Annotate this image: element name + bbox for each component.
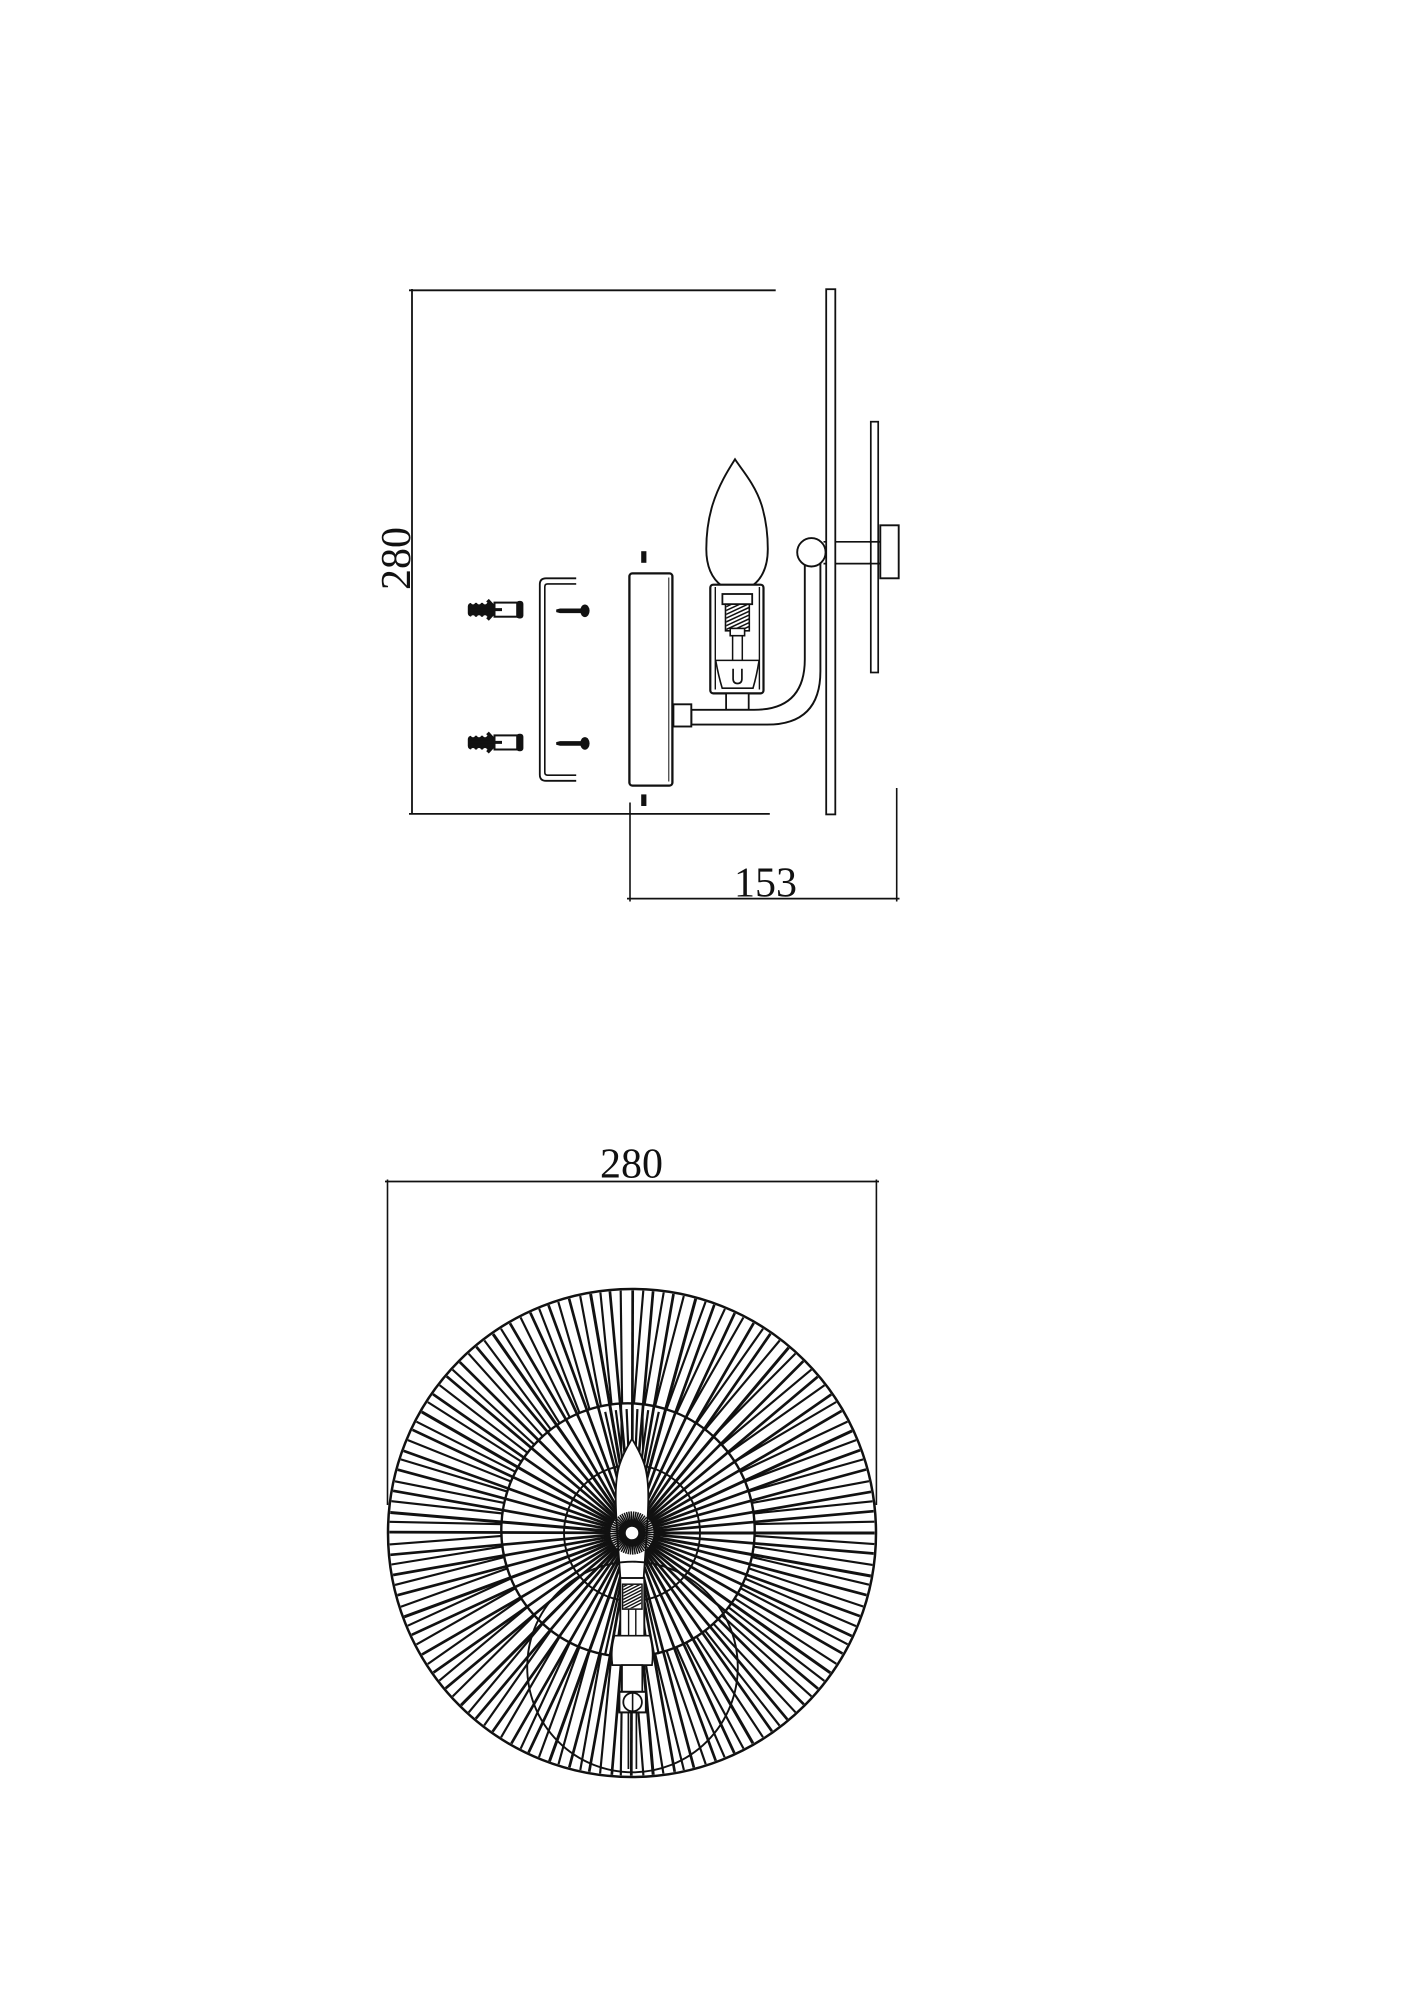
svg-text:153: 153 (734, 861, 797, 907)
svg-text:280: 280 (600, 1142, 663, 1188)
svg-text:280: 280 (374, 527, 420, 590)
